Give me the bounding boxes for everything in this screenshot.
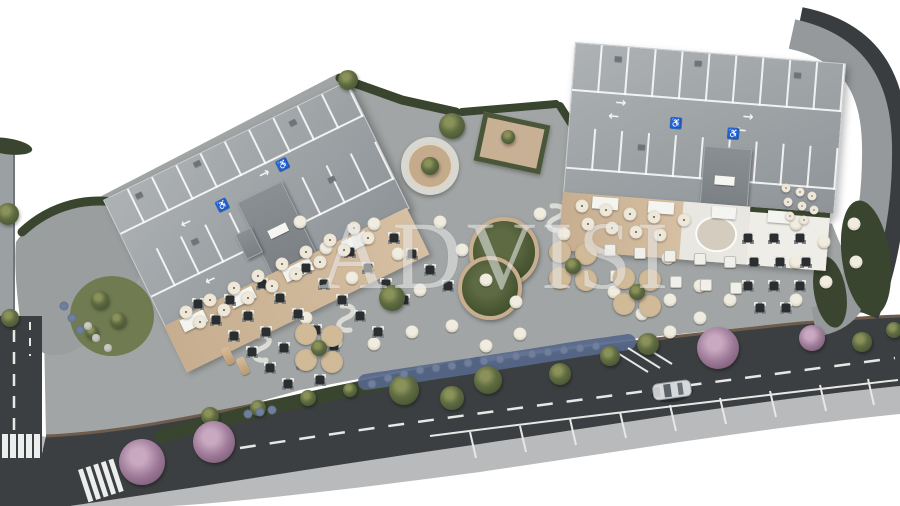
arrow-left-icon: ← (608, 110, 620, 124)
center-tree (421, 157, 439, 175)
terrace-canopy (767, 210, 792, 224)
accessible-parking-icon: ♿ (727, 127, 740, 140)
center-tree (500, 129, 517, 146)
terrace-canopy (711, 206, 736, 220)
skylight (714, 175, 735, 186)
roof-vent (638, 144, 645, 150)
crosswalk-west (2, 434, 40, 458)
side-street (0, 316, 42, 506)
lawn (70, 276, 154, 356)
arrow-right-icon: → (742, 110, 754, 124)
arrow-left-icon: ← (178, 215, 194, 231)
circular-deck (401, 137, 459, 195)
site-plan-rendering: → ← ← → ♿ ♿ → ← → ← (0, 0, 900, 506)
accessible-parking-icon: ♿ (669, 117, 682, 130)
east-building-roof: → ← → ← ♿ ♿ (563, 42, 846, 215)
arrow-left-icon: ← (203, 272, 219, 288)
stair-core (700, 145, 753, 209)
arrow-right-icon: → (615, 96, 627, 110)
watermark: ADVISI (318, 200, 673, 311)
roof-vent (794, 72, 801, 78)
roof-vent (615, 56, 622, 62)
oval-rug (693, 215, 738, 254)
roof-vent (695, 60, 702, 66)
arrow-right-icon: → (257, 166, 273, 182)
skylight (267, 222, 289, 239)
